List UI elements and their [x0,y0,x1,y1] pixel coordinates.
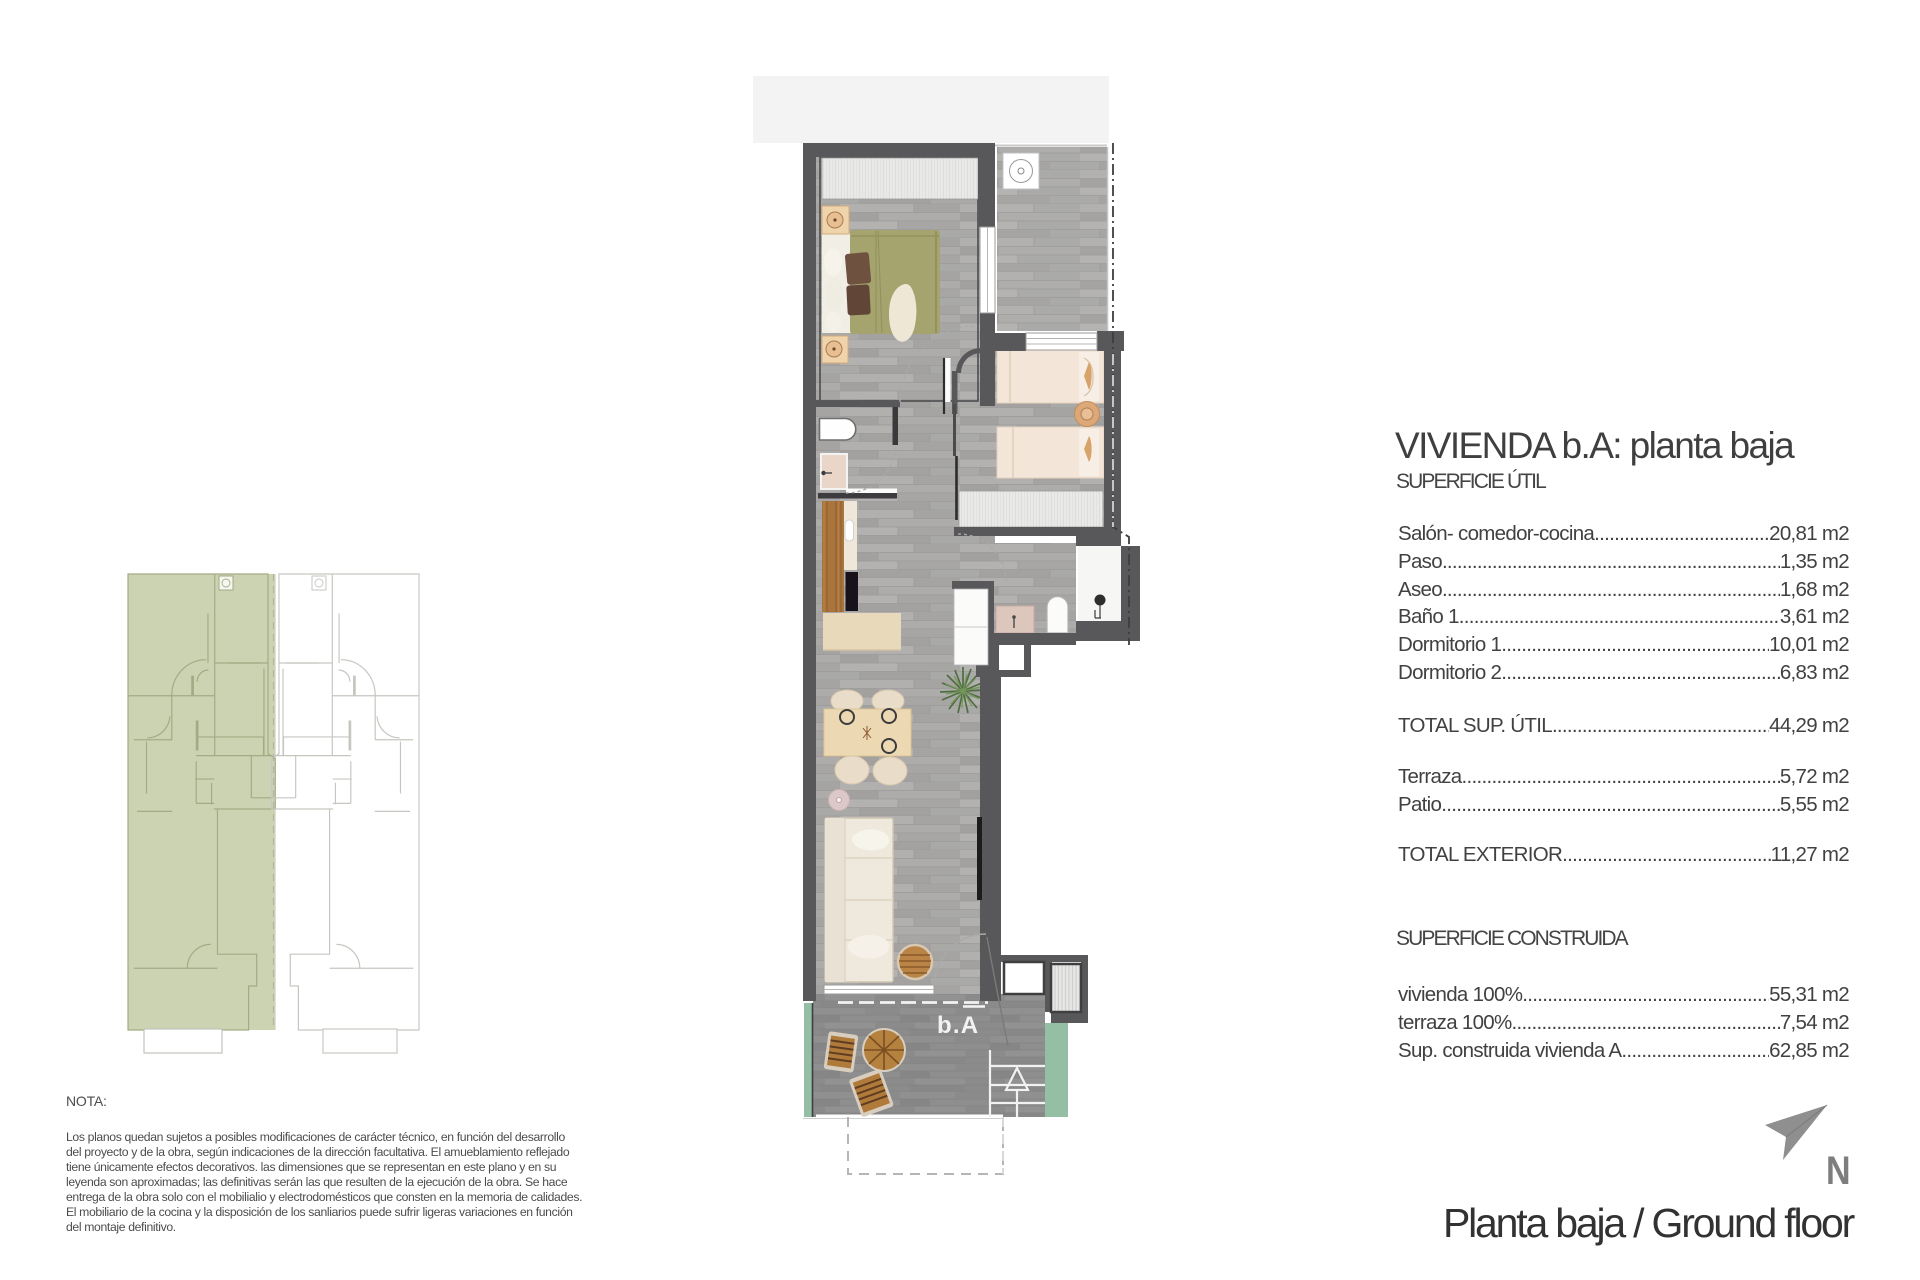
svg-text:b.A: b.A [937,1012,979,1039]
